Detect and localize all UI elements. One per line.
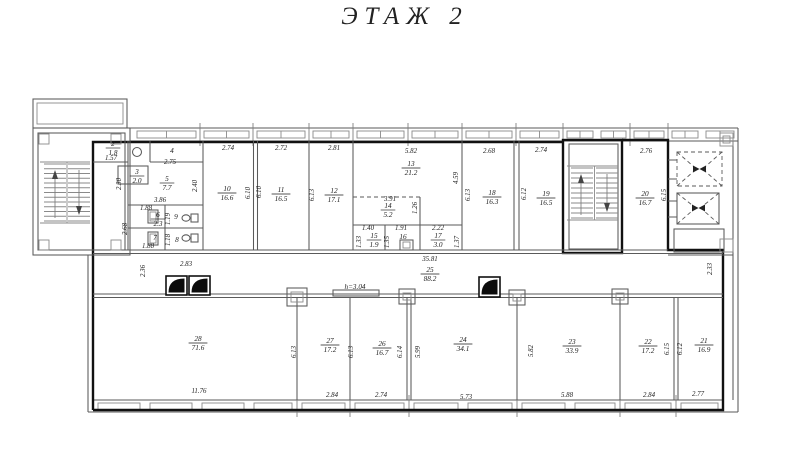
room-number: 20 <box>641 189 649 198</box>
room-area: 3.0 <box>432 240 442 249</box>
room-number: 14 <box>384 201 392 210</box>
dimension-label: 3.86 <box>153 197 167 204</box>
room-label-16: 16 <box>399 232 407 241</box>
room-area: 16.7 <box>376 348 389 357</box>
room-label-19: 1916.5 <box>537 189 556 207</box>
room-label-28: 2871.6 <box>189 334 208 352</box>
room-label-4: 4 <box>170 146 174 155</box>
elevator-symbol-icon <box>692 205 705 212</box>
dimension-label: 1.88 <box>142 243 155 250</box>
room-number: 22 <box>644 337 652 346</box>
dimension-label: 1.19 <box>165 212 172 225</box>
dimension-label: 6.10 <box>245 186 252 199</box>
room-area: 1.9 <box>369 240 378 249</box>
room-number: 11 <box>278 185 285 194</box>
room-label-6: 62.3 <box>151 210 166 228</box>
interior-walls <box>93 141 733 400</box>
dimension-label: 2.74 <box>535 147 548 154</box>
right-staircase <box>567 144 618 249</box>
room-area: 34.1 <box>456 344 470 353</box>
room-number: 18 <box>488 188 496 197</box>
dimension-label: 4.59 <box>453 171 460 184</box>
bold-floor-outline <box>93 140 723 410</box>
dimension-ticks <box>200 123 676 417</box>
right-stairwell-bold-outline <box>563 140 622 253</box>
dimension-label: 6.13 <box>309 188 316 201</box>
room-area: 16.3 <box>486 197 499 206</box>
dimension-label: 6.12 <box>521 187 528 200</box>
fixture-icon <box>400 240 413 250</box>
dimension-label: 11.76 <box>192 388 208 395</box>
elevator-symbol-icon <box>693 166 706 173</box>
room-area: 16.5 <box>540 198 553 207</box>
left-staircase <box>33 99 130 255</box>
room-area: 16.6 <box>221 193 234 202</box>
dimension-label: 6.13 <box>465 188 472 201</box>
room-label-15: 151.9 <box>367 231 382 249</box>
dimension-label: 2.83 <box>180 261 193 268</box>
dimension-label: 2.30 <box>116 177 123 190</box>
dimension-label: 2.74 <box>222 145 235 152</box>
room-number: 2 <box>111 139 115 148</box>
room-label-18: 1816.3 <box>483 188 502 206</box>
room-number: 19 <box>542 189 550 198</box>
room-label-25: 2588.2 <box>421 265 440 283</box>
room-number: 12 <box>330 186 338 195</box>
room-area: 33.9 <box>565 346 579 355</box>
dimension-label: 5.88 <box>561 392 574 399</box>
room-number: 28 <box>194 334 202 343</box>
dimension-label: 1.88 <box>140 205 153 212</box>
room-area: 17.2 <box>642 346 655 355</box>
machine-room <box>674 229 724 252</box>
room-label-10: 1016.6 <box>218 184 237 202</box>
room-label-9: 9 <box>174 212 178 221</box>
toilet-icon <box>182 234 198 242</box>
room-area: 1.8 <box>108 148 117 157</box>
room-label-5: 57.7 <box>160 174 175 192</box>
room-label-20: 2016.7 <box>636 189 655 207</box>
dimension-label: 6.10 <box>256 185 263 198</box>
sink-icon <box>133 148 142 157</box>
room-number: 16 <box>399 232 407 241</box>
dimension-label: 2.76 <box>640 148 653 155</box>
room-number: 24 <box>459 335 467 344</box>
door-symbol-icon <box>166 276 187 295</box>
page-title: ЭТАЖ 2 <box>341 3 469 30</box>
dimension-label: 2.68 <box>122 222 129 235</box>
room-area: 16.7 <box>639 198 652 207</box>
room-number: 5 <box>165 174 169 183</box>
dimension-label: 2.75 <box>164 159 177 166</box>
door-symbol-icon <box>189 276 210 295</box>
room-area: 71.6 <box>192 343 205 352</box>
dimension-label: 6.15 <box>664 342 671 355</box>
room-label-14: 145.2 <box>381 201 396 219</box>
dimension-label: 2.84 <box>643 392 656 399</box>
room-label-11: 1116.5 <box>272 185 291 203</box>
room-area: 21.2 <box>405 168 418 177</box>
room-label-23: 2333.9 <box>563 337 582 355</box>
room-number: 4 <box>170 146 174 155</box>
room-number: 8 <box>175 235 179 244</box>
room-number: 21 <box>700 336 707 345</box>
dimension-label: 1.33 <box>356 235 363 248</box>
room-area: 17.1 <box>328 195 341 204</box>
room-label-13: 1321.2 <box>402 159 421 177</box>
room-area: 2.0 <box>132 176 141 185</box>
room-area: 16.9 <box>698 345 711 354</box>
dimension-label: 1.37 <box>454 235 461 248</box>
toilet-icon <box>182 214 198 222</box>
room-number: 27 <box>326 336 334 345</box>
dimension-label: 1.91 <box>395 225 407 232</box>
door-symbol-icon <box>479 277 500 297</box>
room-number: 3 <box>134 167 139 176</box>
dimension-label: 5.73 <box>460 394 473 401</box>
dimension-label: 5.82 <box>405 148 418 155</box>
room-area: 2.3 <box>153 219 162 228</box>
room-label-12: 1217.1 <box>325 186 344 204</box>
dimension-label: 2.33 <box>707 262 714 275</box>
dimension-label: 2.72 <box>275 145 288 152</box>
dimension-label: 2.40 <box>192 179 199 192</box>
room-label-17: 173.0 <box>431 231 446 249</box>
dimension-label: 1.26 <box>412 201 419 214</box>
room-label-21: 2116.9 <box>695 336 714 354</box>
floor-plan-drawing: ЭТАЖ 2 <box>0 0 800 470</box>
room-number: 26 <box>378 339 386 348</box>
dimension-label: 6.15 <box>661 188 668 201</box>
room-number: 17 <box>434 231 442 240</box>
room-number: 23 <box>568 337 576 346</box>
dimension-label: 2.81 <box>328 145 340 152</box>
room-area: 5.2 <box>383 210 392 219</box>
dimension-label: 2.77 <box>692 391 705 398</box>
room-area: 17.2 <box>324 345 337 354</box>
room-label-7: 7 <box>153 233 157 242</box>
right-stair-treads <box>567 166 618 220</box>
room-number: 9 <box>174 212 178 221</box>
dimension-label: 6.13 <box>291 345 298 358</box>
dimension-label: 1.18 <box>165 233 172 246</box>
height-annotation: h=3.04 <box>344 283 365 291</box>
left-stair-treads <box>40 162 90 223</box>
room-label-24: 2434.1 <box>454 335 473 353</box>
dimension-label: 5.99 <box>415 345 422 358</box>
dimension-label: 2.68 <box>483 148 496 155</box>
room-label-8: 8 <box>175 235 179 244</box>
dimension-label: 6.13 <box>348 345 355 358</box>
room-label-26: 2616.7 <box>373 339 392 357</box>
room-number: 15 <box>370 231 378 240</box>
room-area: 88.2 <box>424 274 437 283</box>
top-window-band <box>137 131 734 138</box>
dimension-label: 2.36 <box>140 264 147 277</box>
room-label-3: 32.0 <box>130 167 145 185</box>
room-number: 10 <box>223 184 231 193</box>
room-label-27: 2717.2 <box>321 336 340 354</box>
room-area: 16.5 <box>275 194 288 203</box>
dimension-label: 2.74 <box>375 392 388 399</box>
dimension-label: 5.82 <box>528 344 535 357</box>
dimension-label: 6.14 <box>397 345 404 358</box>
elevator-shafts <box>668 133 733 252</box>
room-number: 7 <box>153 233 157 242</box>
dimension-label: 2.84 <box>326 392 339 399</box>
room-number: 6 <box>156 210 160 219</box>
room-label-22: 2217.2 <box>639 337 658 355</box>
dimension-label: 1.35 <box>384 235 391 248</box>
dimension-label: 35.81 <box>421 256 438 263</box>
room-number: 25 <box>426 265 434 274</box>
room-area: 7.7 <box>162 183 171 192</box>
floor-plan-page: ЭТАЖ 2 <box>0 0 800 470</box>
dimension-label: 6.12 <box>677 342 684 355</box>
room-number: 13 <box>407 159 415 168</box>
